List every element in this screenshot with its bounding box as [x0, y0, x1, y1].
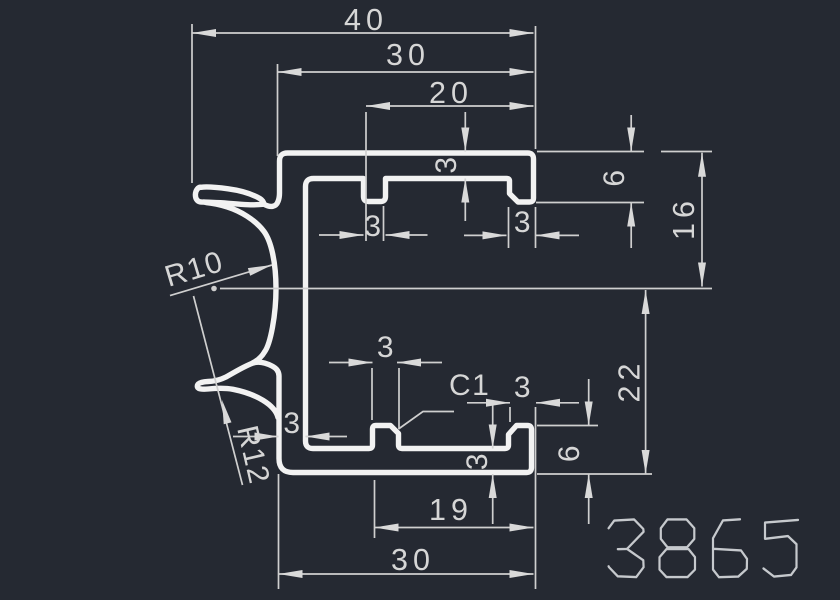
svg-text:30: 30: [386, 38, 430, 72]
svg-text:3: 3: [514, 206, 532, 239]
svg-text:30: 30: [391, 543, 435, 577]
svg-text:22: 22: [613, 359, 647, 403]
svg-text:3: 3: [283, 407, 301, 440]
svg-text:3: 3: [430, 155, 463, 173]
svg-text:6: 6: [553, 444, 586, 462]
svg-text:3: 3: [364, 210, 382, 243]
svg-text:3: 3: [514, 371, 532, 404]
svg-text:3: 3: [461, 452, 494, 470]
svg-text:40: 40: [344, 3, 388, 37]
svg-text:C1: C1: [449, 369, 490, 402]
svg-text:3: 3: [377, 331, 395, 364]
svg-text:6: 6: [598, 168, 631, 186]
svg-text:20: 20: [429, 76, 473, 110]
svg-text:16: 16: [667, 196, 701, 240]
svg-text:19: 19: [429, 493, 473, 527]
